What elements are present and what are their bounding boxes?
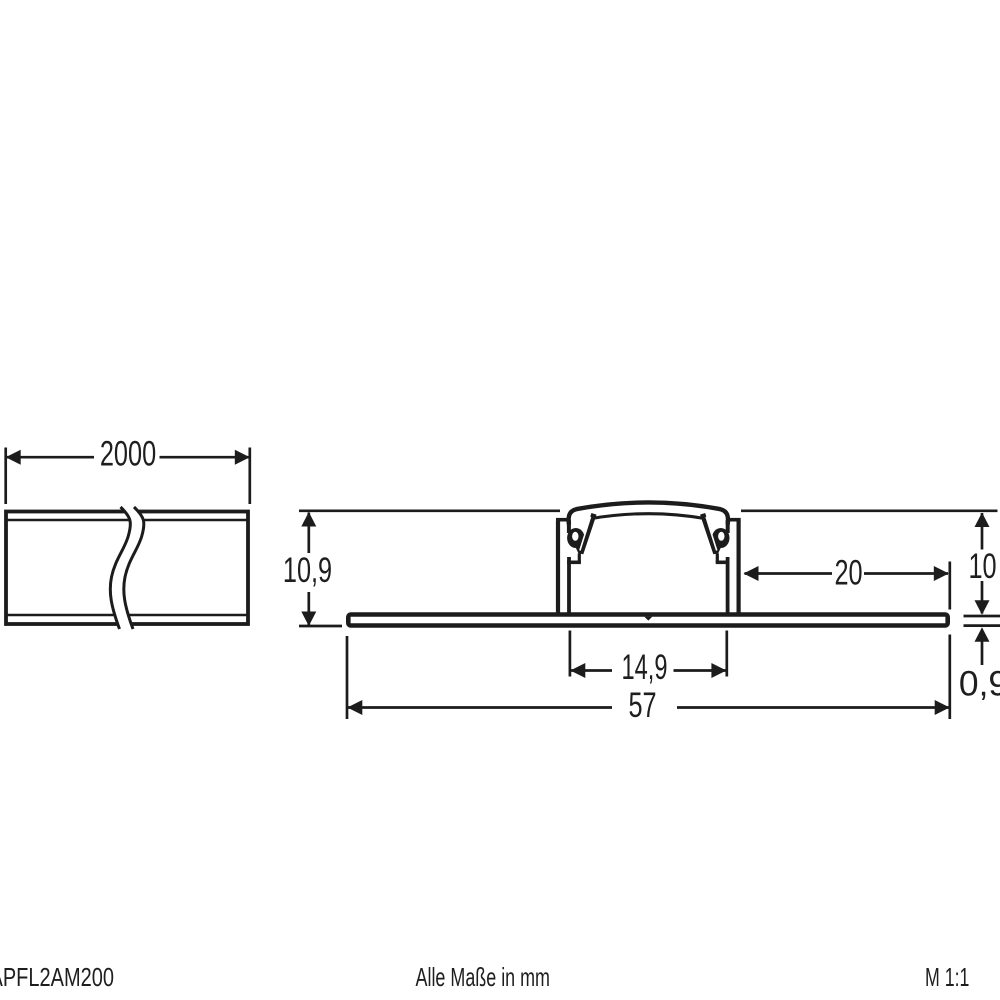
svg-text:10,9: 10,9 [283, 551, 332, 590]
svg-text:0,9: 0,9 [959, 665, 1000, 704]
svg-text:10: 10 [968, 547, 996, 586]
svg-text:Alle Maße in mm: Alle Maße in mm [416, 962, 551, 992]
svg-text:20: 20 [834, 554, 862, 593]
svg-text:57: 57 [628, 686, 656, 725]
svg-text:2000: 2000 [100, 435, 156, 474]
svg-text:M 1:1: M 1:1 [925, 962, 969, 992]
svg-text:14,9: 14,9 [622, 648, 668, 687]
svg-text:APFL2AM200: APFL2AM200 [0, 962, 114, 992]
